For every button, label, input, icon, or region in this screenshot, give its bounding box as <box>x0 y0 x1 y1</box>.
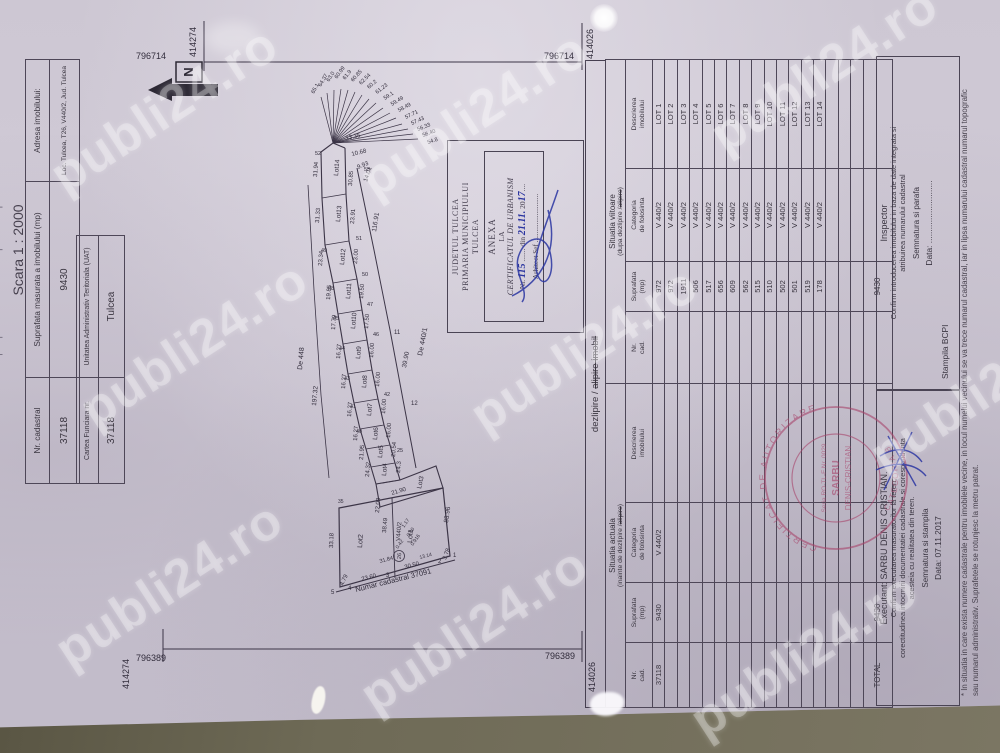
inspector-box: Inspector Confirm introducerea imobilulu… <box>876 56 960 390</box>
movement-row: 519V 440/2LOT 13 <box>801 59 813 707</box>
movement-row: 178V 440/2LOT 14 <box>814 59 826 707</box>
info-value-adresa: Loc. Tulcea, T26, V440/2, Jud. Tulcea <box>50 60 80 182</box>
stamp-architect-line: Arhitect Sef ........................... <box>532 152 540 321</box>
movement-row: 501V 440/2LOT 12 <box>789 59 801 707</box>
info-header-adresa: Adresa imobilului: <box>26 60 50 182</box>
info-header-nr-cadastral: Nr. cadastral <box>26 378 50 484</box>
info-value-suprafata: 9430 <box>50 182 80 378</box>
col-nr-cad-actuala: Nr. cad. <box>626 643 653 708</box>
movement-row: 517V 440/2LOT 5 <box>702 59 714 707</box>
movement-row: 506V 440/2LOT 4 <box>690 59 702 707</box>
movement-row: 510V 440/2LOT 10 <box>764 59 776 707</box>
executant-signature-label: Semnatura si stampila <box>921 391 930 705</box>
executant-name: Executant: SARBU DENIS CRISTIAN. <box>879 391 889 705</box>
col-categoria-actuala: Categoria de folosinta <box>626 503 653 583</box>
stamp-number-line: Nr. 115 ....... din 21.11. 2017.... <box>517 152 528 321</box>
section-actuala-header: Situatia actuala (inainte de dezlipire /… <box>606 384 626 708</box>
movement-row: 1911V 440/2LOT 3 <box>677 59 689 707</box>
inspector-date: Data: ........................... <box>924 57 934 389</box>
col-nr-cad-viitoare: Nr. cad. <box>626 312 653 384</box>
bcpi-stamp-label: Stampila BCPI <box>940 57 950 389</box>
parcel-movement-table: dezlipire / alipire imobil Situatia actu… <box>585 60 875 708</box>
cf-value: 37118 <box>99 378 125 484</box>
movement-row <box>838 59 850 707</box>
movement-row: 502V 440/2LOT 11 <box>776 59 788 707</box>
executant-date: Data: 07.11.2017 <box>933 391 943 705</box>
movement-row: 609V 440/2LOT 7 <box>727 59 739 707</box>
col-suprafata-viitoare: Suprafata (mp) <box>626 262 653 312</box>
col-descrierea-actuala: Descrierea imobilului <box>626 384 653 503</box>
inspector-title: Inspector <box>879 57 889 389</box>
scanned-cadastral-plan-photo: cu propunerea de dezlipire / alipire Sca… <box>0 0 1000 753</box>
stamp-certificate: CERTIFICATUL DE URBANISM <box>506 152 515 321</box>
executant-box: Executant: SARBU DENIS CRISTIAN. Confirm… <box>876 390 960 706</box>
movement-rows: 371189430V 440/2972V 440/2LOT 1972V 440/… <box>653 59 864 707</box>
stamp-anexa: ANEXA <box>487 152 497 321</box>
section-viitoare-header: Situatia viitoare (dupa dezlipire /alipi… <box>606 59 626 383</box>
stamp-number-handwritten: 115 <box>517 263 528 277</box>
info-header-suprafata: Suprafata masurata a imobilului (mp) <box>26 182 50 378</box>
movement-table-title: dezlipire / alipire imobil <box>585 60 605 708</box>
uat-value: Tulcea <box>99 236 125 378</box>
stamp-date-handwritten: 21.11. <box>517 211 528 235</box>
stamp-cityhall: PRIMARIA MUNICIPIULUI <box>461 141 471 332</box>
parcel-info-table: Nr. cadastral Suprafata masurata a imobi… <box>25 60 79 484</box>
movement-row: 515V 440/2LOT 9 <box>752 59 764 707</box>
movement-row: 972V 440/2LOT 2 <box>665 59 677 707</box>
col-descrierea-viitoare: Descrierea imobilului <box>626 59 653 168</box>
land-book-table: Cartea Funciara nr. Unitatea Administrat… <box>76 236 124 484</box>
cf-header: Cartea Funciara nr. <box>77 378 99 484</box>
uat-header: Unitatea Administrativ Teritoriala (UAT) <box>77 236 99 378</box>
movement-row: 656V 440/2LOT 6 <box>714 59 726 707</box>
col-categoria-viitoare: Categoria de folosinta <box>626 169 653 262</box>
stamp-county: JUDETUL TULCEA <box>451 141 461 332</box>
movement-row <box>826 59 838 707</box>
movement-row <box>851 59 863 707</box>
info-value-nr-cadastral: 37118 <box>50 378 80 484</box>
stamp-la: LA <box>497 152 506 321</box>
urbanism-annex-stamp: JUDETUL TULCEA PRIMARIA MUNICIPIULUI TUL… <box>447 140 584 333</box>
inspector-signature-label: Semnatura si parafa <box>912 57 921 389</box>
movement-row: 371189430V 440/2972V 440/2LOT 1 <box>653 59 665 707</box>
page-title-cut: cu propunerea de dezlipire / alipire <box>0 70 7 490</box>
footnote: * In situatia in care exista numere cada… <box>960 58 1000 696</box>
stamp-city: TULCEA <box>471 141 481 332</box>
movement-row: 562V 440/2LOT 8 <box>739 59 751 707</box>
col-suprafata-actuala: Suprafata (mp) <box>626 583 653 643</box>
